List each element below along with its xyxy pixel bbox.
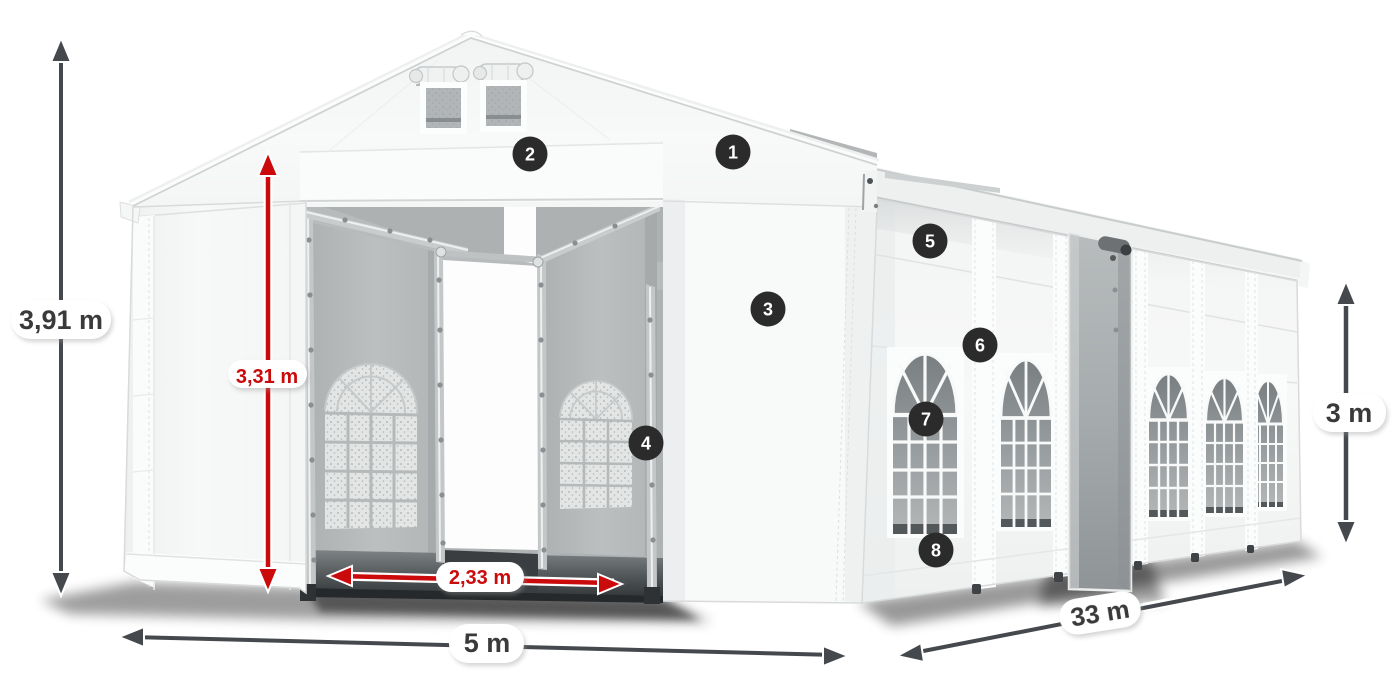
svg-text:3,31 m: 3,31 m bbox=[236, 366, 298, 388]
svg-text:8: 8 bbox=[931, 541, 941, 561]
svg-text:3,91 m: 3,91 m bbox=[19, 305, 103, 335]
svg-text:5 m: 5 m bbox=[464, 628, 511, 658]
svg-text:5: 5 bbox=[925, 232, 935, 252]
svg-text:2,33 m: 2,33 m bbox=[449, 567, 511, 589]
svg-text:3 m: 3 m bbox=[1326, 398, 1373, 428]
svg-text:1: 1 bbox=[728, 143, 738, 163]
svg-text:6: 6 bbox=[975, 336, 985, 356]
svg-text:4: 4 bbox=[641, 434, 651, 454]
svg-text:2: 2 bbox=[525, 145, 535, 165]
svg-text:3: 3 bbox=[763, 300, 773, 320]
svg-text:7: 7 bbox=[921, 410, 931, 430]
